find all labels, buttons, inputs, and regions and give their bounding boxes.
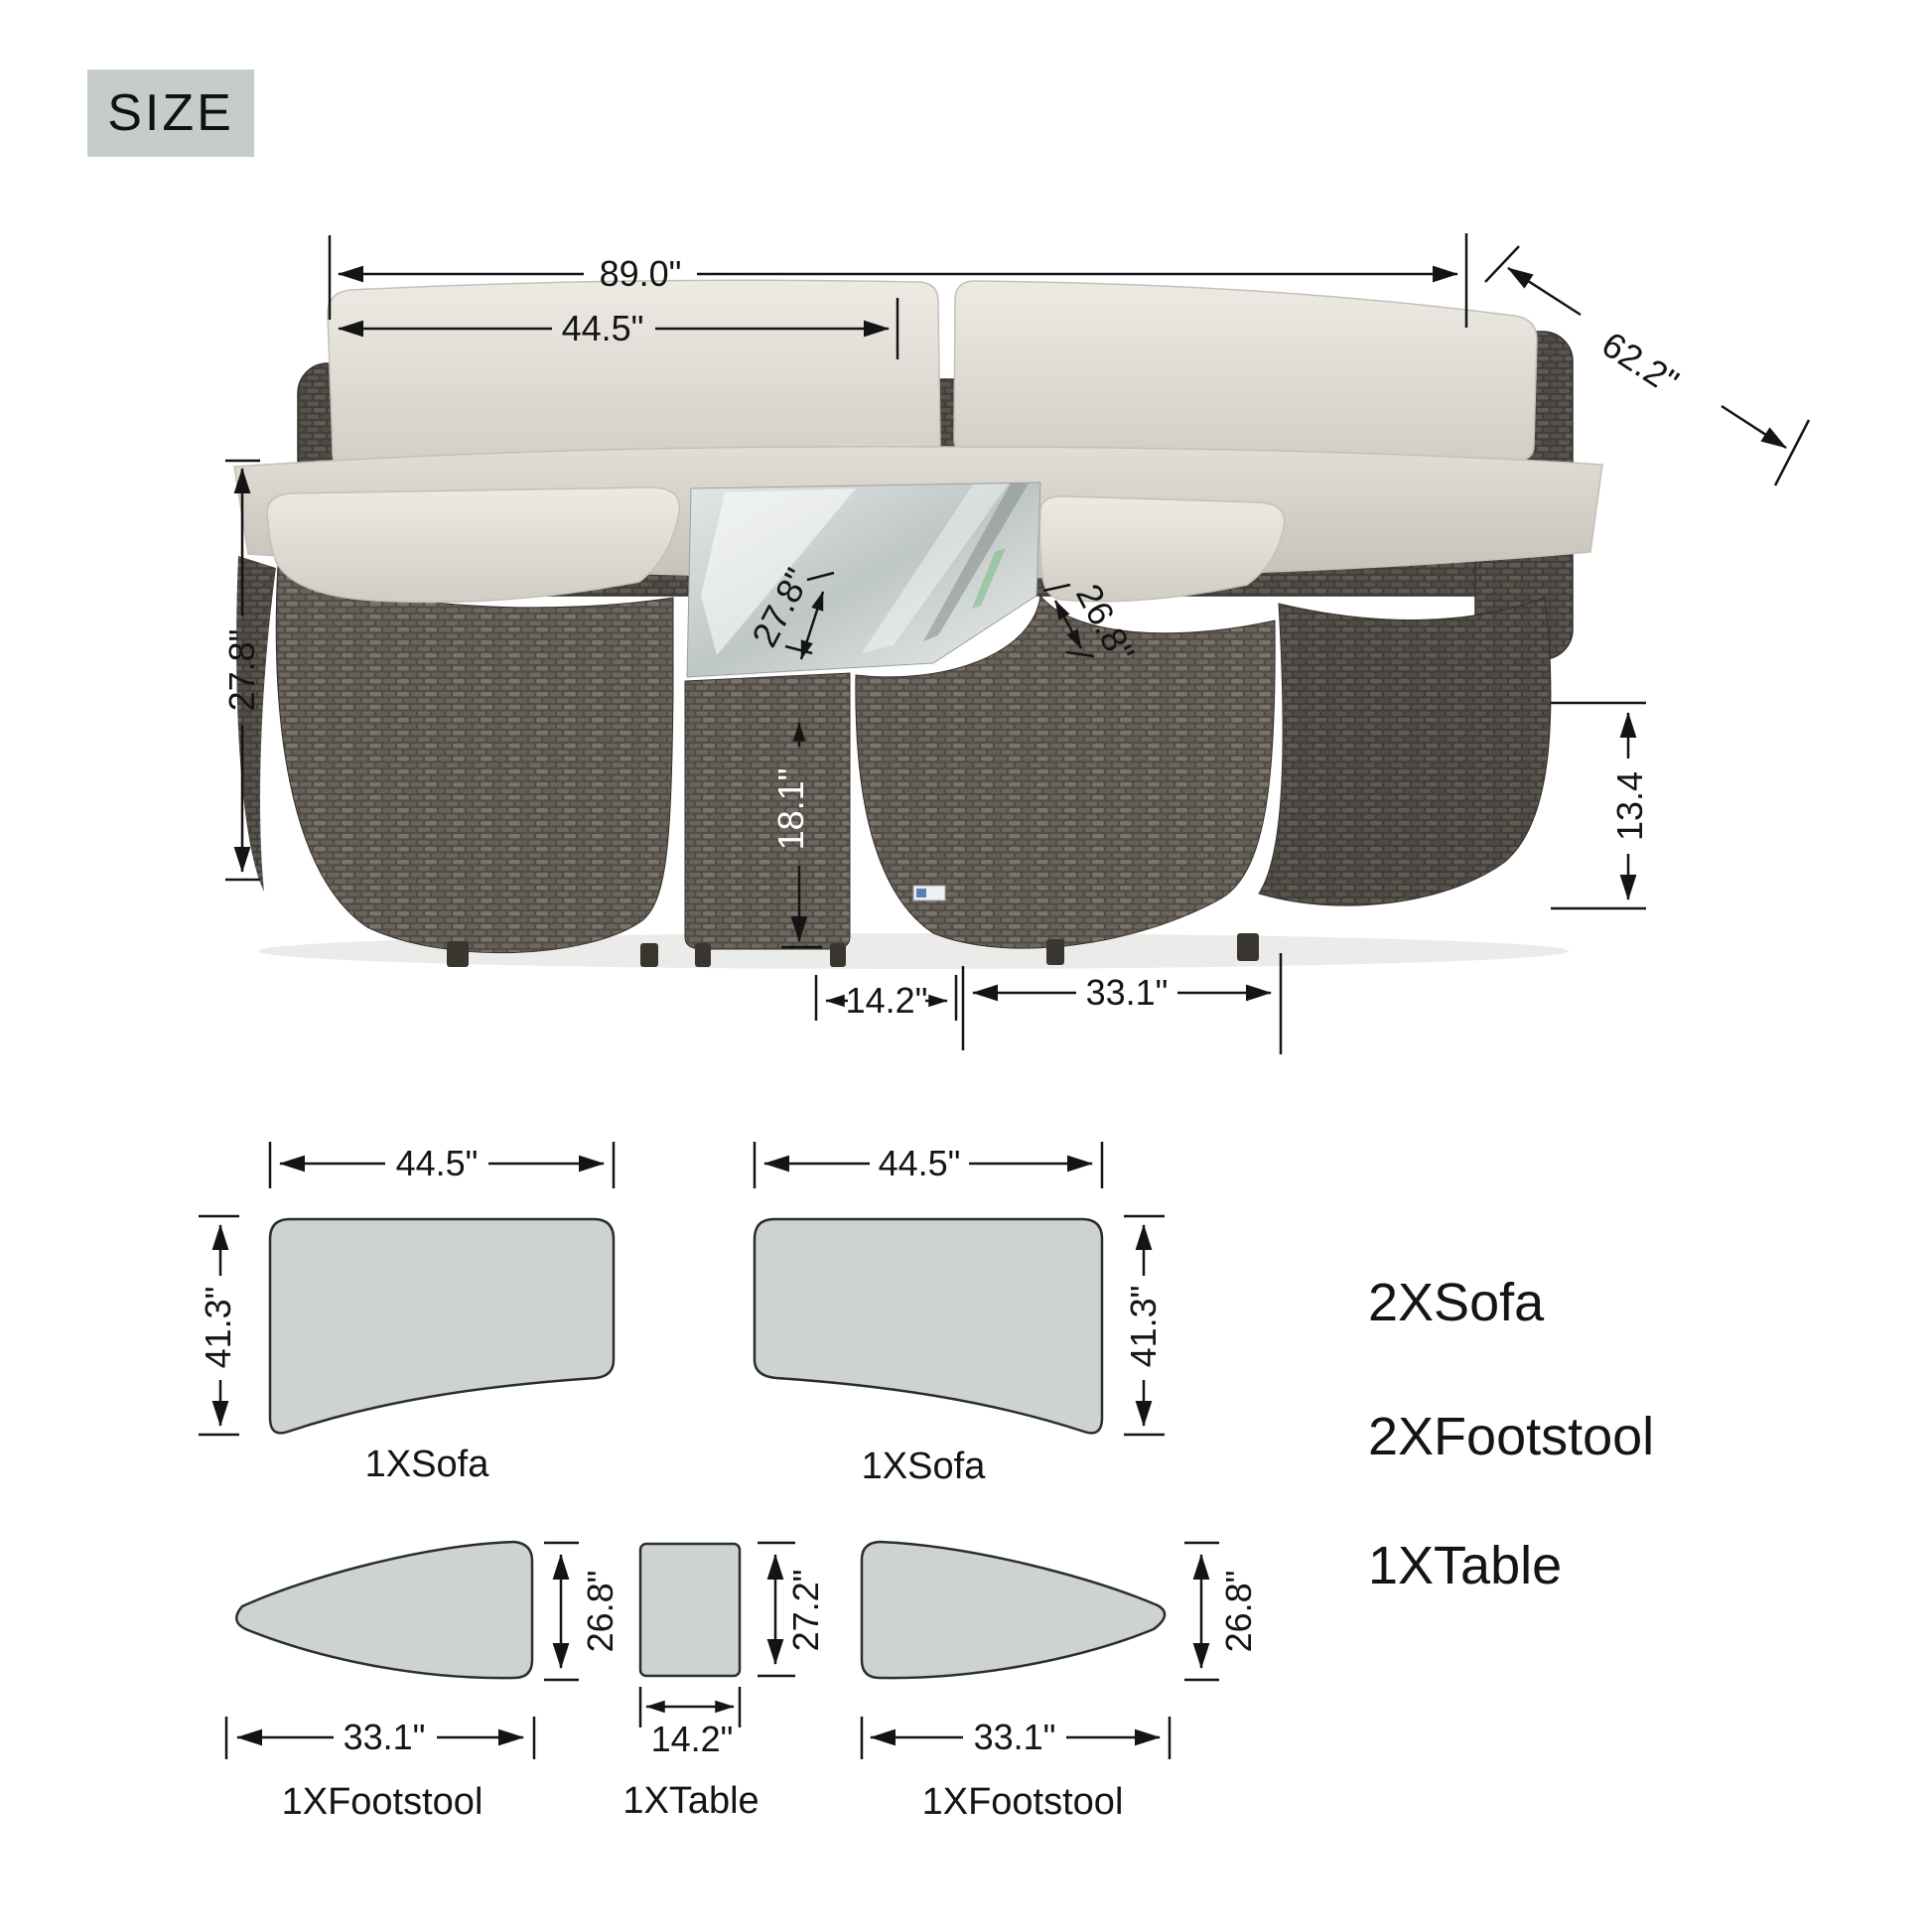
legend-item-table: 1XTable [1368,1535,1562,1596]
schematic-footstool-right-caption: 1XFootstool [922,1783,1124,1821]
dim-back-height-label: 27.8" [224,629,260,712]
schematic-sofa-left-width-label: 44.5" [396,1146,479,1181]
dim-table-width-label: 14.2" [846,983,928,1019]
schematic-footstool-left-caption: 1XFootstool [282,1783,483,1821]
diagram-canvas [0,0,1932,1932]
size-badge: SIZE [87,69,254,157]
schematic-footstool-left-shape [236,1542,532,1678]
dim-footstool-height-label: 13.4 [1612,771,1648,841]
dim-footstool-width-label: 33.1" [1086,975,1169,1011]
schematic-table-depth-label: 27.2" [788,1570,824,1652]
dim-table-height-label: 18.1" [773,768,809,851]
schematic-footstool-left-width-label: 33.1" [344,1720,426,1755]
dim-half-width-label: 44.5" [562,311,644,346]
schematic-sofa-right-depth-label: 41.3" [1126,1286,1162,1368]
schematic-footstool-right-depth-label: 26.8" [1221,1571,1257,1653]
schematic-table-caption: 1XTable [622,1782,759,1820]
schematic-footstool-right-width-label: 33.1" [974,1720,1056,1755]
footstool-cushion-left [267,487,679,603]
schematic-sofa-right-width-label: 44.5" [879,1146,961,1181]
sofa-base-right [1259,598,1551,905]
schematic-table-shape [640,1544,740,1676]
footstool-base-left [276,564,673,953]
schematic-table-width-label: 14.2" [651,1722,734,1757]
schematic-footstool-left-depth-label: 26.8" [583,1571,619,1653]
brand-tag [913,886,945,900]
legend-item-footstools: 2XFootstool [1368,1406,1654,1467]
dim-footstool-left-depth-lines [544,1543,579,1680]
schematic-sofa-left-shape [270,1219,614,1433]
schematic-sofa-right-caption: 1XSofa [862,1448,986,1485]
back-cushion-right [954,281,1537,460]
product-photo [234,280,1602,969]
schematic-sofa-right-shape [755,1219,1102,1433]
dim-footstool-right-depth-lines [1184,1543,1219,1680]
schematic-footstool-right-shape [862,1542,1165,1678]
size-diagram-page: SIZE 89.0" 44.5" 62.2" 27.8" 27.8" 26.8"… [0,0,1932,1932]
schematic-sofa-left-depth-label: 41.3" [201,1287,236,1369]
schematic-sofa-left-caption: 1XSofa [365,1446,489,1483]
size-badge-label: SIZE [107,83,234,143]
legend-item-sofas: 2XSofa [1368,1272,1544,1333]
dim-overall-width-label: 89.0" [600,256,682,292]
table-base [685,673,850,949]
